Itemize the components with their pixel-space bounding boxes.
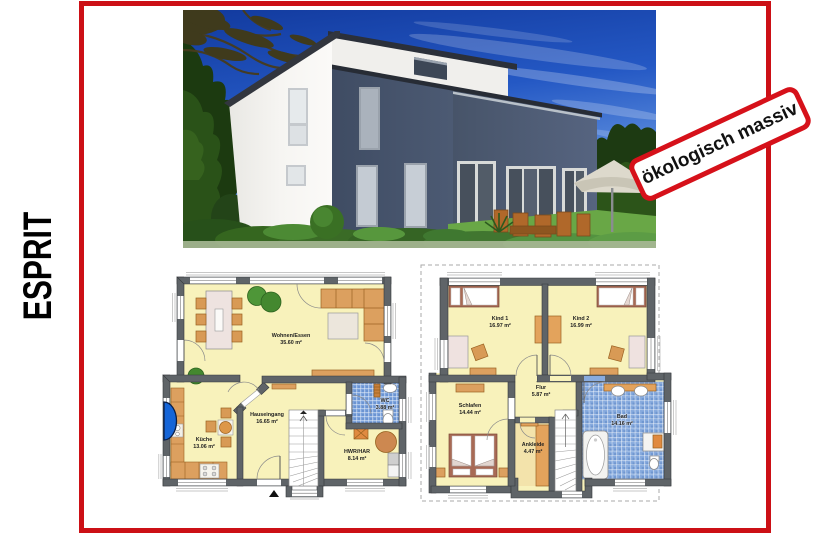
svg-text:Flur: Flur	[536, 385, 547, 391]
svg-text:14.44 m²: 14.44 m²	[459, 410, 481, 416]
svg-text:Küche: Küche	[196, 437, 212, 443]
svg-text:3.88 m²: 3.88 m²	[376, 405, 395, 411]
svg-text:16.97 m²: 16.97 m²	[489, 323, 511, 329]
svg-text:16.65 m²: 16.65 m²	[256, 419, 278, 425]
svg-text:16.99 m²: 16.99 m²	[570, 323, 592, 329]
svg-text:4.47 m²: 4.47 m²	[524, 449, 543, 455]
svg-text:Kind 2: Kind 2	[573, 316, 589, 322]
svg-text:8.14 m²: 8.14 m²	[348, 456, 367, 462]
svg-text:Kind 1: Kind 1	[492, 316, 508, 322]
svg-text:13.06 m²: 13.06 m²	[193, 444, 215, 450]
svg-text:Wohnen/Essen: Wohnen/Essen	[272, 333, 311, 339]
svg-text:Ankleide: Ankleide	[522, 442, 544, 448]
svg-text:Schlafen: Schlafen	[459, 403, 481, 409]
svg-text:WC: WC	[381, 398, 390, 404]
svg-text:14.16 m²: 14.16 m²	[611, 421, 633, 427]
svg-text:35.60 m²: 35.60 m²	[280, 340, 302, 346]
svg-text:5.87 m²: 5.87 m²	[532, 392, 551, 398]
svg-text:Bad: Bad	[617, 414, 627, 420]
svg-text:HWR/HAR: HWR/HAR	[344, 449, 370, 455]
svg-text:Hauseingang: Hauseingang	[250, 412, 284, 418]
